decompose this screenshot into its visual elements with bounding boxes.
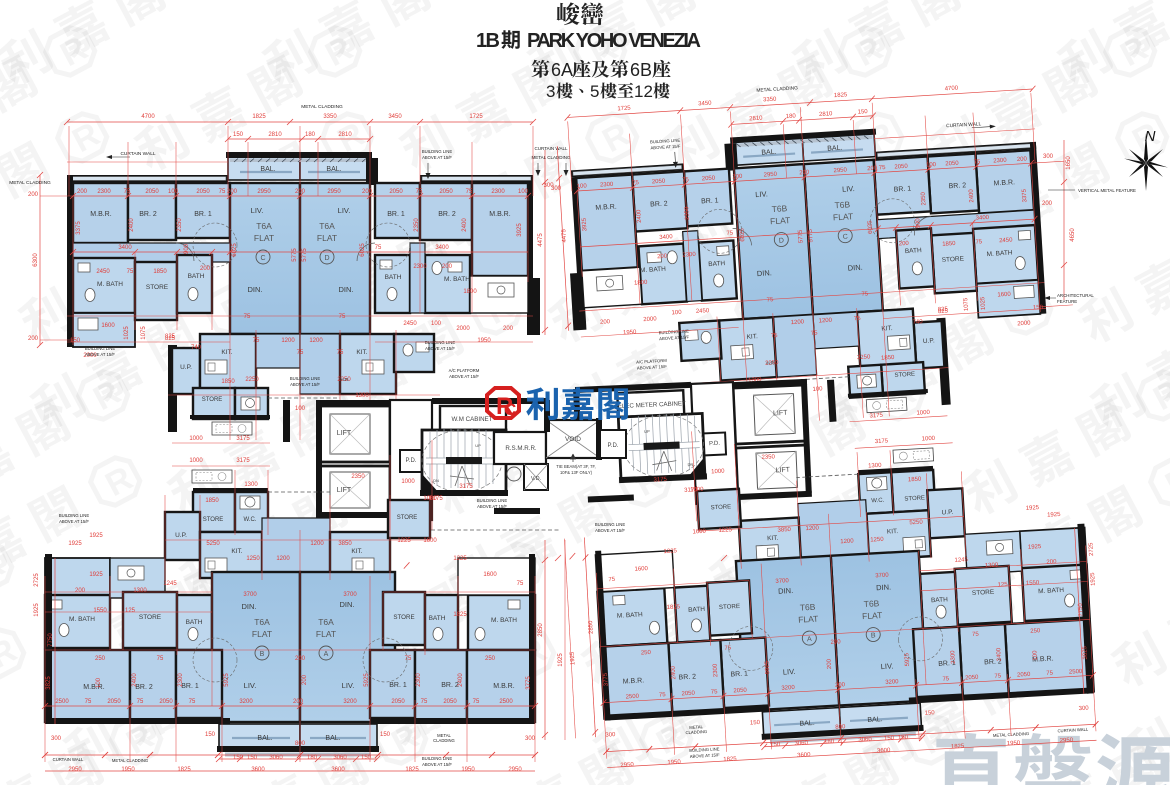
svg-text:3175: 3175	[684, 487, 698, 494]
svg-text:5925: 5925	[904, 652, 911, 666]
svg-text:LIV.: LIV.	[842, 184, 855, 194]
svg-text:BR. 2: BR. 2	[441, 682, 459, 689]
svg-text:75: 75	[608, 577, 616, 583]
svg-text:75: 75	[724, 645, 732, 651]
svg-text:2810: 2810	[749, 115, 763, 122]
svg-text:825: 825	[938, 309, 949, 316]
svg-text:740: 740	[912, 319, 923, 326]
svg-text:250: 250	[1030, 628, 1041, 635]
svg-text:M. BATH: M. BATH	[617, 611, 644, 619]
svg-text:75: 75	[659, 692, 667, 698]
svg-text:1825: 1825	[667, 604, 681, 611]
svg-text:75: 75	[297, 350, 304, 356]
svg-text:KIT.: KIT.	[767, 535, 779, 543]
svg-text:BATH: BATH	[708, 260, 726, 268]
svg-text:W.C.: W.C.	[871, 498, 885, 505]
svg-text:1600: 1600	[692, 529, 706, 536]
svg-text:CURTAIN WALL: CURTAIN WALL	[120, 151, 155, 157]
svg-text:2050: 2050	[145, 189, 159, 195]
svg-text:ABOVE AT 15/F: ABOVE AT 15/F	[477, 504, 507, 509]
svg-text:STORE: STORE	[393, 614, 414, 621]
svg-text:2300: 2300	[178, 673, 184, 687]
svg-text:VERTICAL METAL FEATURE: VERTICAL METAL FEATURE	[1078, 188, 1136, 193]
svg-text:M. BATH: M. BATH	[1038, 587, 1065, 595]
svg-text:DIN.: DIN.	[242, 602, 257, 611]
svg-text:1825: 1825	[723, 756, 737, 763]
svg-text:3925: 3925	[582, 217, 589, 231]
svg-text:STORE: STORE	[202, 397, 223, 403]
svg-text:200: 200	[362, 189, 373, 195]
svg-text:1600: 1600	[101, 323, 115, 329]
svg-text:75: 75	[244, 314, 251, 320]
svg-text:300: 300	[605, 732, 616, 739]
svg-text:FLAT: FLAT	[770, 215, 791, 226]
svg-text:DN: DN	[433, 478, 439, 483]
svg-text:T6B: T6B	[800, 602, 816, 613]
svg-text:5775: 5775	[302, 248, 308, 262]
svg-text:2050: 2050	[391, 699, 405, 705]
svg-text:U.P.: U.P.	[923, 337, 935, 345]
svg-text:825: 825	[165, 336, 176, 342]
svg-text:1950: 1950	[121, 767, 135, 773]
svg-text:75: 75	[975, 239, 983, 245]
svg-text:250: 250	[95, 656, 106, 662]
svg-text:1300: 1300	[985, 562, 999, 569]
svg-text:LIV.: LIV.	[244, 681, 257, 690]
svg-text:2400: 2400	[129, 218, 135, 232]
svg-text:2450: 2450	[696, 308, 710, 315]
svg-text:N: N	[1145, 128, 1156, 145]
svg-text:75: 75	[127, 269, 134, 275]
svg-text:M.B.R.: M.B.R.	[993, 179, 1015, 187]
svg-text:STORE: STORE	[397, 515, 418, 521]
svg-text:6025: 6025	[360, 243, 366, 257]
svg-text:1200: 1200	[281, 338, 295, 344]
svg-text:1850: 1850	[908, 477, 922, 484]
svg-text:200: 200	[295, 656, 306, 662]
svg-text:5775: 5775	[292, 248, 298, 262]
svg-text:6A: 6A	[551, 60, 573, 80]
svg-text:STORE: STORE	[203, 517, 224, 523]
svg-text:DN: DN	[687, 462, 693, 467]
svg-text:3375: 3375	[76, 221, 82, 235]
svg-text:200: 200	[28, 192, 39, 198]
svg-text:BATH: BATH	[688, 606, 706, 614]
svg-text:UP: UP	[644, 429, 650, 434]
svg-text:300: 300	[525, 736, 536, 742]
svg-text:CURTAIN WALL: CURTAIN WALL	[53, 757, 84, 762]
svg-text:3175: 3175	[459, 484, 473, 490]
svg-text:2300: 2300	[97, 189, 111, 195]
svg-text:W.C.: W.C.	[244, 517, 257, 523]
svg-text:180: 180	[786, 113, 797, 120]
svg-text:2050: 2050	[389, 189, 403, 195]
svg-text:2050: 2050	[733, 688, 747, 695]
svg-text:2400: 2400	[636, 209, 643, 223]
svg-text:1725: 1725	[617, 106, 631, 113]
svg-text:2050: 2050	[196, 189, 210, 195]
svg-text:150: 150	[858, 109, 869, 116]
svg-text:3060: 3060	[333, 755, 347, 761]
svg-text:KIT.: KIT.	[356, 349, 367, 356]
svg-text:3700: 3700	[243, 592, 257, 598]
svg-text:LIV.: LIV.	[783, 667, 796, 677]
svg-text:STORE: STORE	[139, 614, 162, 621]
svg-text:3350: 3350	[323, 114, 337, 120]
svg-text:3600: 3600	[797, 752, 811, 759]
svg-text:BATH: BATH	[385, 274, 402, 281]
svg-text:2300: 2300	[413, 264, 427, 270]
svg-text:BATH: BATH	[186, 619, 203, 626]
svg-text:3400: 3400	[435, 245, 449, 251]
svg-text:100: 100	[1032, 650, 1039, 661]
svg-text:BATH: BATH	[188, 273, 205, 280]
svg-text:1950: 1950	[667, 759, 681, 766]
svg-text:800: 800	[295, 741, 306, 747]
svg-text:KIT.: KIT.	[887, 528, 899, 536]
svg-text:3925: 3925	[517, 223, 523, 237]
svg-text:M.B.R.: M.B.R.	[623, 677, 645, 685]
svg-text:BR. 1: BR. 1	[389, 682, 407, 689]
svg-text:DIN.: DIN.	[339, 285, 354, 294]
svg-text:2000: 2000	[456, 326, 470, 332]
svg-text:2050: 2050	[107, 699, 121, 705]
svg-text:180: 180	[307, 755, 318, 761]
svg-text:2400: 2400	[132, 673, 138, 687]
svg-text:1925: 1925	[1026, 505, 1040, 512]
svg-text:H.R.: H.R.	[341, 377, 350, 382]
svg-text:1950: 1950	[461, 767, 475, 773]
svg-text:75: 75	[337, 350, 344, 356]
svg-text:BAL.: BAL.	[257, 735, 272, 742]
svg-text:75: 75	[375, 245, 382, 251]
svg-text:FLAT: FLAT	[254, 233, 274, 243]
svg-text:2300: 2300	[993, 158, 1007, 165]
svg-text:2300: 2300	[416, 673, 422, 687]
svg-text:1300: 1300	[355, 393, 369, 399]
svg-text:3700: 3700	[775, 578, 789, 585]
svg-text:1025: 1025	[124, 326, 130, 340]
svg-text:125: 125	[998, 582, 1009, 589]
svg-text:B: B	[871, 632, 876, 639]
svg-text:M. BATH: M. BATH	[69, 616, 95, 623]
svg-text:BUILDING LINE: BUILDING LINE	[595, 522, 625, 527]
svg-text:1925: 1925	[558, 653, 564, 667]
svg-text:4700: 4700	[141, 114, 155, 120]
svg-text:1250: 1250	[870, 537, 884, 544]
svg-text:6300: 6300	[33, 253, 39, 267]
svg-text:3175: 3175	[236, 436, 250, 442]
svg-text:C: C	[504, 400, 516, 419]
svg-text:1825: 1825	[453, 612, 467, 618]
svg-text:2950: 2950	[257, 189, 271, 195]
svg-text:BAL.: BAL.	[260, 166, 275, 173]
svg-text:2000: 2000	[643, 316, 657, 323]
svg-text:BUILDING LINE: BUILDING LINE	[422, 756, 452, 761]
svg-text:100: 100	[926, 162, 937, 169]
svg-text:2250: 2250	[245, 377, 259, 383]
svg-text:LIV.: LIV.	[338, 206, 351, 215]
svg-text:6025: 6025	[740, 227, 747, 241]
svg-text:200: 200	[826, 658, 833, 669]
svg-text:1800: 1800	[634, 280, 648, 287]
svg-text:2250: 2250	[857, 354, 871, 361]
svg-text:10F& 13F ONLY): 10F& 13F ONLY)	[560, 470, 593, 475]
svg-text:2400: 2400	[462, 218, 468, 232]
svg-text:5250: 5250	[909, 520, 923, 527]
svg-text:T6B: T6B	[834, 199, 851, 210]
svg-text:BR. 2: BR. 2	[438, 211, 456, 218]
svg-text:BR. 2: BR. 2	[650, 200, 668, 208]
svg-text:2050: 2050	[945, 161, 959, 168]
svg-text:2850: 2850	[588, 620, 595, 634]
svg-text:U.P.: U.P.	[941, 509, 953, 517]
svg-text:3400: 3400	[118, 245, 132, 251]
svg-text:200: 200	[442, 264, 453, 270]
svg-text:1000: 1000	[189, 436, 203, 442]
svg-text:DIN.: DIN.	[340, 600, 355, 609]
svg-text:CURTAIN WALL: CURTAIN WALL	[535, 146, 568, 151]
svg-text:1200: 1200	[819, 318, 833, 325]
svg-text:2850: 2850	[538, 623, 544, 637]
svg-text:BR. 1: BR. 1	[387, 211, 405, 218]
svg-text:BAL.: BAL.	[827, 145, 843, 153]
svg-text:D: D	[779, 237, 784, 244]
svg-text:BAL.: BAL.	[325, 735, 340, 742]
svg-text:1550: 1550	[1026, 580, 1040, 587]
svg-text:75: 75	[766, 297, 774, 303]
svg-text:BAL.: BAL.	[799, 720, 815, 728]
svg-text:1725: 1725	[469, 114, 483, 120]
svg-text:75: 75	[339, 314, 346, 320]
svg-text:VOID: VOID	[565, 436, 581, 443]
svg-text:KIT.: KIT.	[351, 548, 362, 555]
svg-text:ABOVE AT 15/F: ABOVE AT 15/F	[422, 155, 452, 160]
svg-text:STORE: STORE	[719, 603, 741, 611]
svg-text:740: 740	[191, 345, 202, 351]
svg-text:3060: 3060	[269, 755, 283, 761]
svg-text:75: 75	[972, 632, 980, 638]
svg-text:STORE: STORE	[710, 504, 731, 511]
svg-text:KIT.: KIT.	[221, 349, 232, 356]
svg-text:1200: 1200	[310, 541, 324, 547]
svg-text:1825: 1825	[177, 767, 191, 773]
svg-text:FLAT: FLAT	[798, 614, 819, 625]
svg-text:2350: 2350	[921, 191, 928, 205]
svg-text:3350: 3350	[763, 97, 777, 104]
svg-text:BUILDING LINE: BUILDING LINE	[477, 498, 507, 503]
svg-text:200: 200	[200, 266, 211, 272]
svg-text:300: 300	[51, 736, 62, 742]
svg-text:6B: 6B	[630, 60, 652, 80]
svg-text:T6B: T6B	[771, 203, 788, 214]
svg-text:1600: 1600	[483, 572, 497, 578]
svg-text:900: 900	[184, 243, 190, 254]
svg-text:1925: 1925	[1028, 544, 1042, 551]
svg-text:200: 200	[77, 189, 88, 195]
svg-text:2950: 2950	[508, 767, 522, 773]
svg-text:P.D.: P.D.	[709, 441, 720, 447]
svg-text:2300: 2300	[600, 182, 614, 189]
svg-text:1850: 1850	[205, 498, 219, 504]
svg-text:250: 250	[485, 656, 496, 662]
svg-text:3600: 3600	[877, 748, 891, 755]
svg-text:STORE: STORE	[894, 372, 915, 379]
svg-text:3200: 3200	[781, 685, 795, 692]
svg-text:2050: 2050	[681, 691, 695, 698]
svg-text:2400: 2400	[671, 665, 678, 679]
svg-text:3060: 3060	[858, 737, 872, 744]
svg-text:2810: 2810	[338, 132, 352, 138]
svg-text:M.B.R.: M.B.R.	[595, 204, 617, 212]
svg-text:5775: 5775	[798, 229, 805, 243]
svg-text:100: 100	[431, 321, 442, 327]
svg-text:2950: 2950	[833, 167, 847, 174]
svg-text:BUILDING LINE: BUILDING LINE	[290, 376, 320, 381]
svg-text:2350: 2350	[177, 218, 183, 232]
svg-text:1000: 1000	[922, 436, 936, 443]
svg-text:2500: 2500	[626, 694, 640, 701]
svg-text:BAL.: BAL.	[761, 149, 777, 157]
svg-text:200: 200	[600, 319, 611, 326]
svg-text:1200: 1200	[276, 556, 290, 562]
svg-text:ABOVE AT 15/F: ABOVE AT 15/F	[425, 346, 455, 351]
svg-text:3200: 3200	[239, 699, 253, 705]
svg-text:FLAT: FLAT	[316, 629, 336, 639]
svg-text:T6A: T6A	[254, 617, 270, 627]
svg-text:2450: 2450	[403, 321, 417, 327]
svg-text:DIN.: DIN.	[876, 582, 891, 592]
svg-text:METAL CLADDING: METAL CLADDING	[531, 155, 571, 160]
svg-text:3600: 3600	[251, 767, 265, 773]
svg-text:1925: 1925	[1090, 572, 1097, 586]
svg-text:3060: 3060	[794, 740, 808, 747]
svg-text:FLAT: FLAT	[833, 211, 854, 222]
svg-text:2500: 2500	[55, 699, 69, 705]
svg-text:3175: 3175	[869, 413, 883, 420]
svg-text:100: 100	[96, 677, 102, 688]
svg-text:DIN.: DIN.	[778, 586, 793, 596]
svg-text:1825: 1825	[405, 767, 419, 773]
svg-text:75: 75	[994, 673, 1002, 679]
svg-text:BAL.: BAL.	[326, 166, 341, 173]
svg-text:3175: 3175	[653, 477, 667, 484]
svg-text:1850: 1850	[153, 269, 167, 275]
svg-text:1950: 1950	[1007, 740, 1021, 747]
svg-text:1850: 1850	[221, 379, 235, 385]
svg-text:KIT.: KIT.	[231, 548, 242, 555]
svg-text:75: 75	[726, 230, 734, 236]
svg-text:2500: 2500	[1069, 669, 1083, 676]
svg-text:75: 75	[85, 699, 92, 705]
svg-text:2050: 2050	[443, 699, 457, 705]
svg-text:900: 900	[915, 217, 922, 228]
svg-text:1925: 1925	[570, 651, 577, 665]
svg-text:FEATURE: FEATURE	[1057, 299, 1077, 304]
svg-text:1600: 1600	[423, 538, 437, 544]
svg-text:1300: 1300	[133, 588, 147, 594]
svg-text:1825: 1825	[834, 92, 848, 99]
svg-text:2400: 2400	[996, 647, 1003, 661]
svg-text:FLAT: FLAT	[317, 233, 337, 243]
svg-text:150: 150	[205, 732, 216, 738]
svg-text:C: C	[260, 255, 265, 262]
svg-text:2725: 2725	[1088, 542, 1095, 556]
svg-text:TIE BEAM(AT 3F, 7F,: TIE BEAM(AT 3F, 7F,	[556, 464, 595, 469]
svg-text:A/C PLATFORM: A/C PLATFORM	[449, 368, 480, 373]
svg-text:1600: 1600	[634, 566, 648, 573]
svg-text:ABOVE AT 15/F: ABOVE AT 15/F	[422, 762, 452, 767]
svg-text:2400: 2400	[969, 188, 976, 202]
svg-text:3850: 3850	[777, 527, 791, 534]
svg-text:2050: 2050	[894, 164, 908, 171]
svg-text:150: 150	[247, 755, 258, 761]
svg-text:LIV.: LIV.	[880, 661, 893, 671]
svg-text:UP: UP	[475, 443, 481, 448]
svg-text:3600: 3600	[331, 767, 345, 773]
svg-text:100: 100	[168, 189, 179, 195]
svg-text:200: 200	[657, 254, 668, 261]
svg-text:75: 75	[473, 699, 480, 705]
svg-text:A: A	[807, 636, 812, 643]
svg-text:A: A	[324, 651, 329, 658]
svg-text:2050: 2050	[439, 189, 453, 195]
svg-text:1225: 1225	[663, 548, 677, 555]
svg-text:1950: 1950	[623, 330, 637, 337]
svg-text:ARCHITECTURAL: ARCHITECTURAL	[1057, 293, 1094, 298]
svg-text:150: 150	[884, 735, 895, 742]
svg-text:200: 200	[28, 336, 39, 342]
svg-text:M. BATH: M. BATH	[97, 281, 123, 288]
svg-text:1300: 1300	[244, 482, 258, 488]
svg-text:FLAT: FLAT	[252, 629, 272, 639]
svg-text:DIN.: DIN.	[847, 263, 863, 273]
svg-text:75: 75	[861, 291, 869, 297]
svg-text:250: 250	[641, 650, 652, 657]
svg-text:200: 200	[75, 588, 86, 594]
svg-text:2300: 2300	[950, 650, 957, 664]
svg-text:BR. 1: BR. 1	[194, 211, 212, 218]
svg-text:1600: 1600	[997, 292, 1011, 299]
svg-text:75: 75	[157, 656, 164, 662]
svg-text:1550: 1550	[93, 608, 107, 614]
svg-text:BR. 2: BR. 2	[678, 673, 696, 681]
svg-text:1000: 1000	[711, 469, 725, 476]
svg-text:75: 75	[879, 165, 887, 171]
svg-text:1B: 1B	[476, 30, 500, 52]
svg-text:LIV.: LIV.	[342, 681, 355, 690]
svg-text:LIV.: LIV.	[755, 189, 768, 199]
svg-text:M.B.R.: M.B.R.	[90, 211, 111, 218]
svg-text:2000: 2000	[1017, 320, 1031, 327]
svg-text:1225: 1225	[718, 527, 732, 534]
svg-text:3400: 3400	[659, 234, 673, 241]
svg-text:300: 300	[1079, 706, 1090, 713]
svg-text:1850: 1850	[942, 241, 956, 248]
svg-text:ABOVE AT 15/F: ABOVE AT 15/F	[59, 519, 89, 524]
svg-text:75: 75	[137, 699, 144, 705]
svg-text:150: 150	[925, 710, 936, 717]
svg-text:METAL CLADDING: METAL CLADDING	[301, 104, 343, 110]
svg-text:1850: 1850	[881, 355, 895, 362]
svg-text:150: 150	[770, 742, 781, 749]
svg-text:2450: 2450	[96, 269, 110, 275]
svg-text:200: 200	[1046, 559, 1057, 566]
svg-text:T6A: T6A	[256, 221, 272, 231]
svg-text:2950: 2950	[1060, 738, 1074, 745]
svg-text:CLADDING: CLADDING	[433, 738, 455, 743]
svg-text:150: 150	[233, 755, 244, 761]
